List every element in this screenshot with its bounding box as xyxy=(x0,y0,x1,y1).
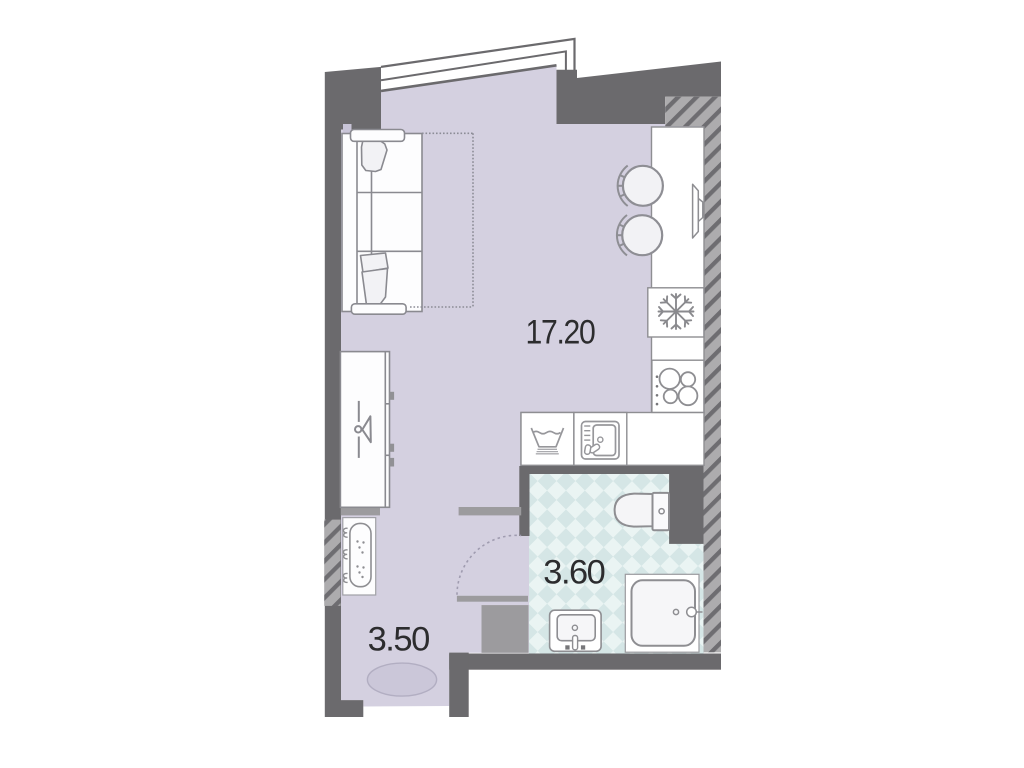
svg-text:17.20: 17.20 xyxy=(526,313,595,351)
svg-text:3.50: 3.50 xyxy=(368,621,429,659)
svg-text:3.60: 3.60 xyxy=(543,554,604,592)
